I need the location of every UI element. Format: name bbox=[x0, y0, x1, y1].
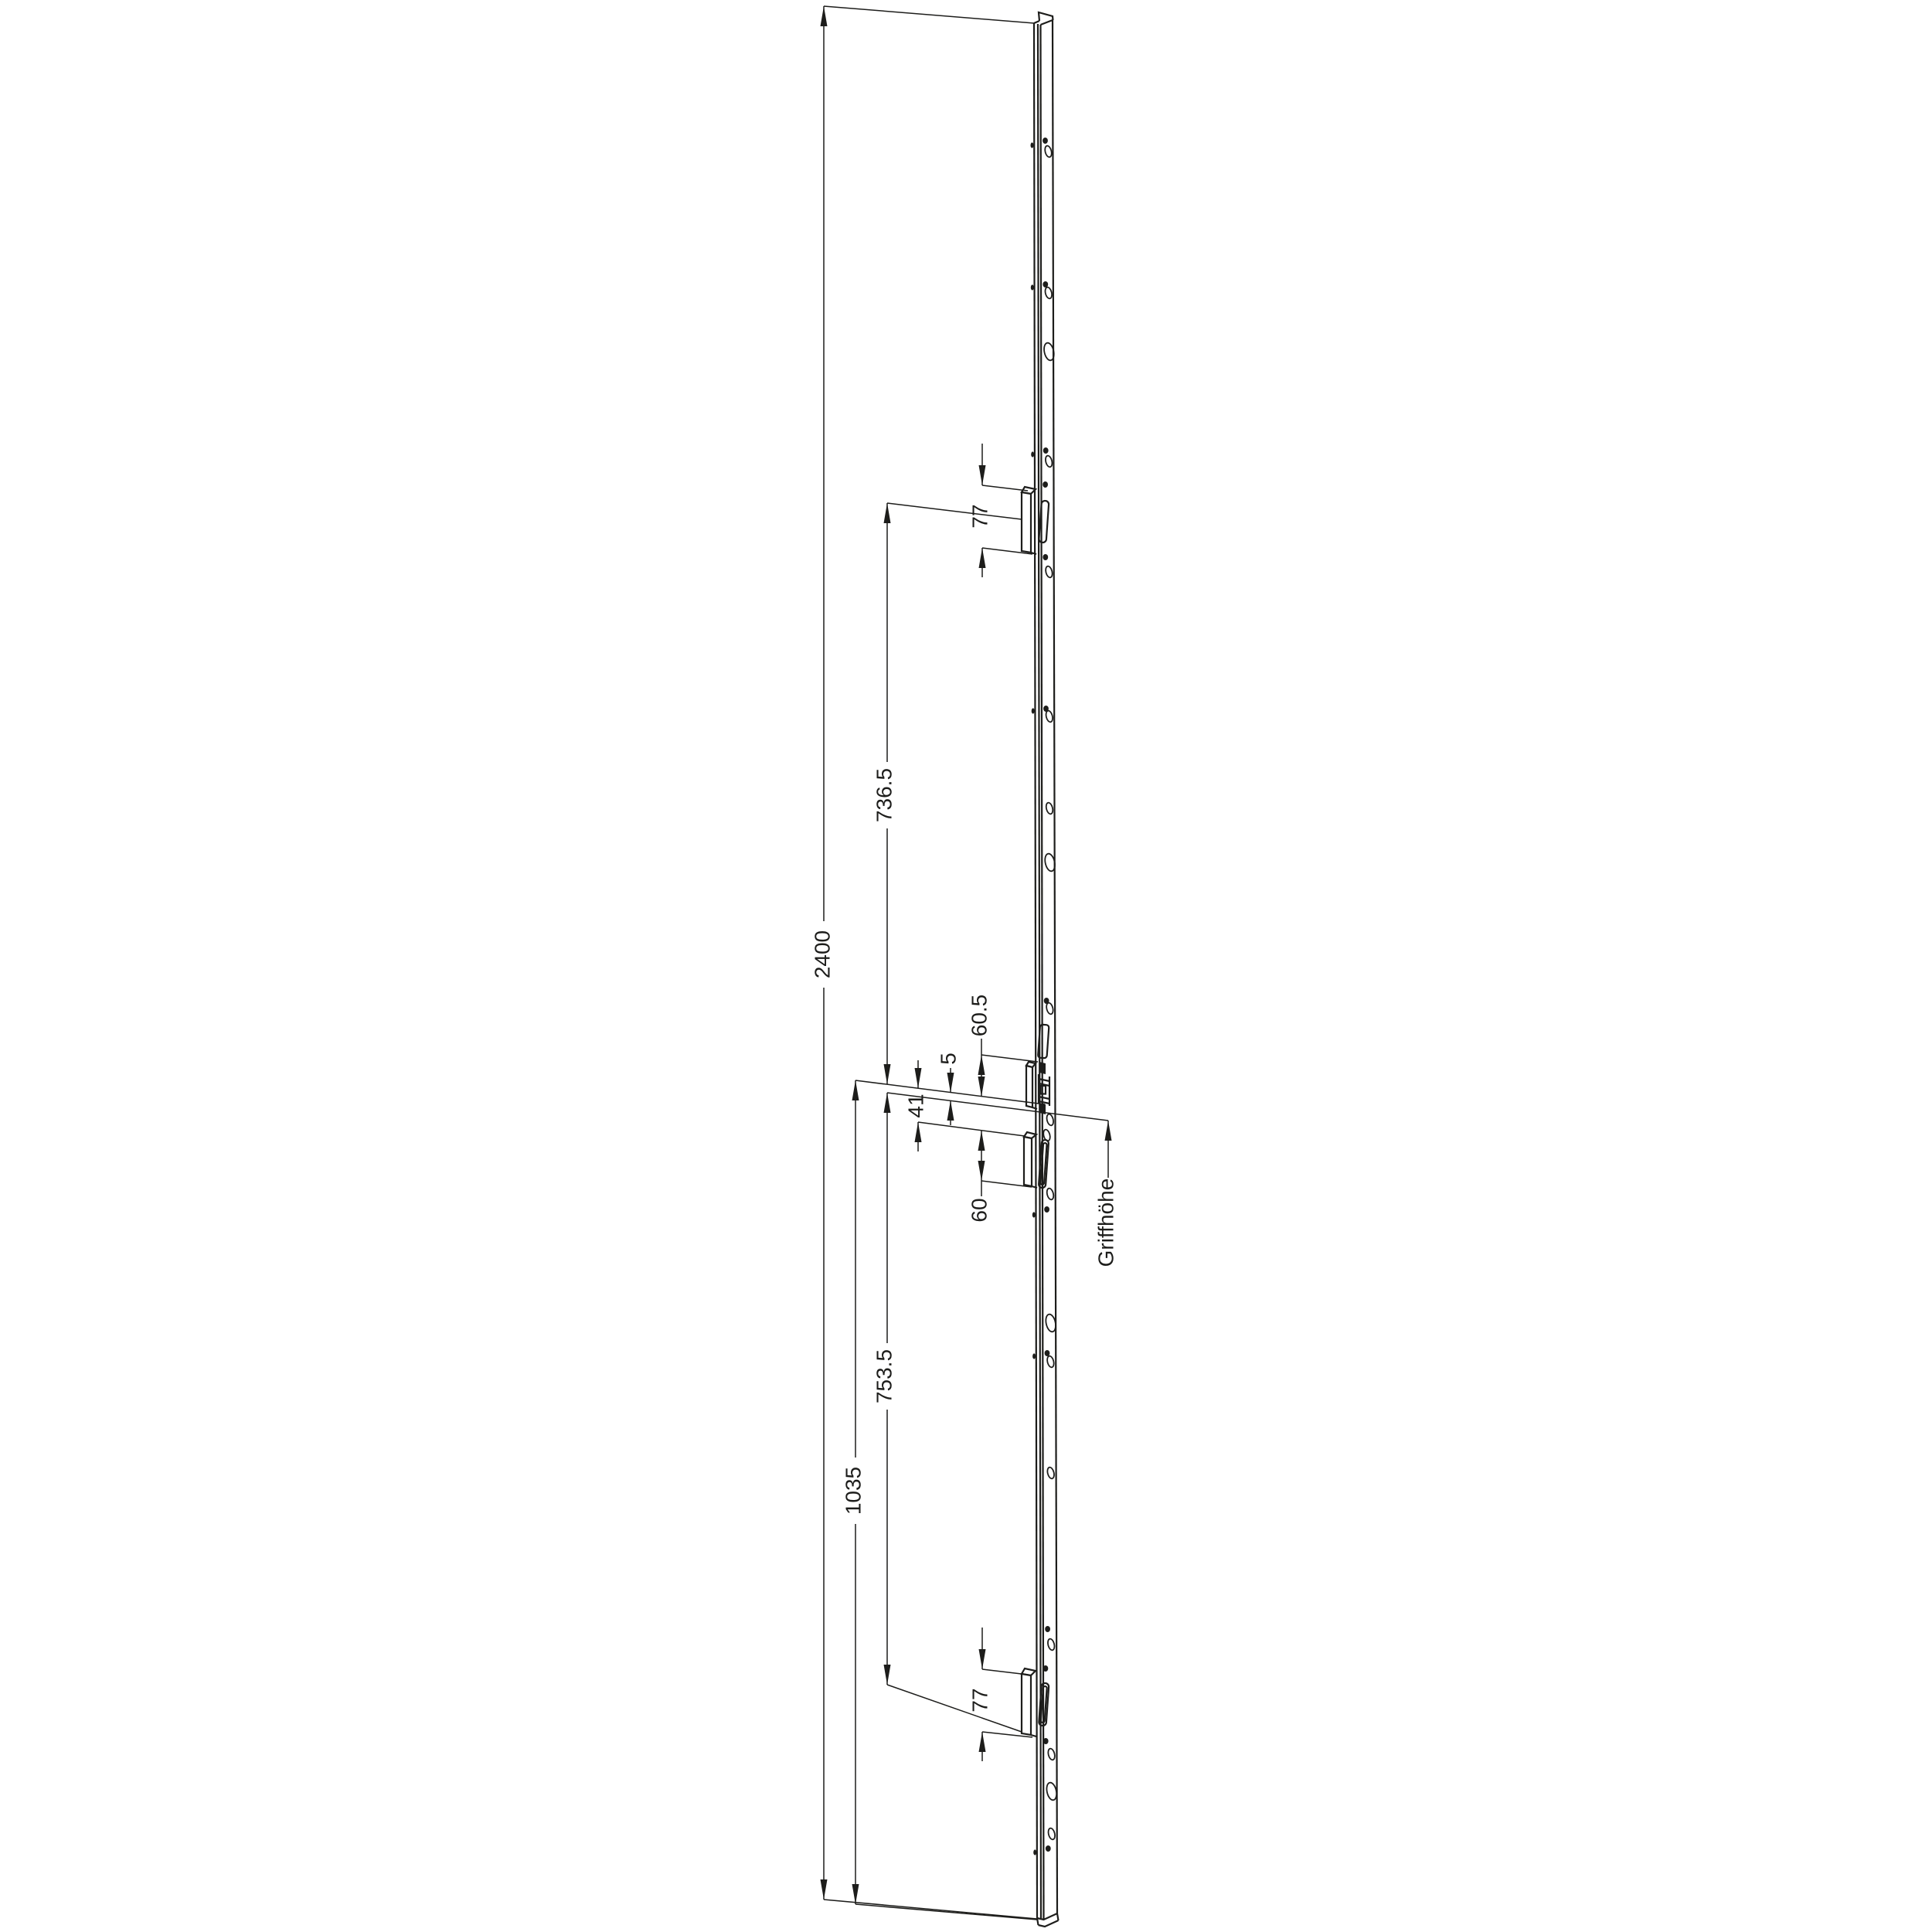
dimension-label: 2400 bbox=[810, 930, 834, 978]
strip-left-outer-edge bbox=[1034, 23, 1037, 1918]
dimension-label: 41 bbox=[903, 1094, 927, 1117]
grip-height-label: Griffhöhe bbox=[1094, 1179, 1117, 1267]
bottom-striker-box bbox=[1022, 1668, 1036, 1736]
dimension-label: 5 bbox=[936, 1053, 960, 1065]
dimension-middle-striker-height: 60 bbox=[967, 1131, 1032, 1223]
dimension-label: 77 bbox=[968, 504, 992, 528]
dimension-overall-length: 2400 bbox=[810, 6, 1037, 1919]
latch-upper-block bbox=[1039, 1062, 1046, 1074]
dimension-latch-to-middle-striker: 41 bbox=[903, 1060, 927, 1151]
latch-assembly bbox=[1039, 1062, 1049, 1114]
strip-right-edge bbox=[1053, 20, 1057, 1913]
lock-rail-strip bbox=[1031, 12, 1059, 1927]
dimension-label: 736.5 bbox=[872, 768, 896, 822]
drawing-page: 2400 736.5 77 60.5 5 bbox=[0, 0, 1932, 1932]
dimension-latch-gap: 5 bbox=[936, 1053, 960, 1125]
dimension-latch-to-bottom-end: 1035 bbox=[841, 1080, 1037, 1920]
middle-striker-top-projection bbox=[918, 1122, 1025, 1136]
dimension-label: 753.5 bbox=[872, 1349, 896, 1403]
dimension-grip-height: Griffhöhe bbox=[1094, 1121, 1117, 1267]
dimension-label: 60.5 bbox=[967, 995, 991, 1037]
dimension-label: 60 bbox=[967, 1198, 991, 1222]
technical-drawing: 2400 736.5 77 60.5 5 bbox=[0, 0, 1932, 1932]
dimension-label: 1035 bbox=[841, 1467, 865, 1515]
dimension-top-striker-to-latch: 736.5 bbox=[872, 503, 1022, 1084]
top-bolt-slot bbox=[1039, 501, 1049, 543]
dimension-latch-to-bottom-striker: 753.5 bbox=[872, 1093, 1022, 1732]
dimension-label: 77 bbox=[968, 1688, 992, 1712]
strip-top-fold bbox=[1034, 12, 1053, 25]
